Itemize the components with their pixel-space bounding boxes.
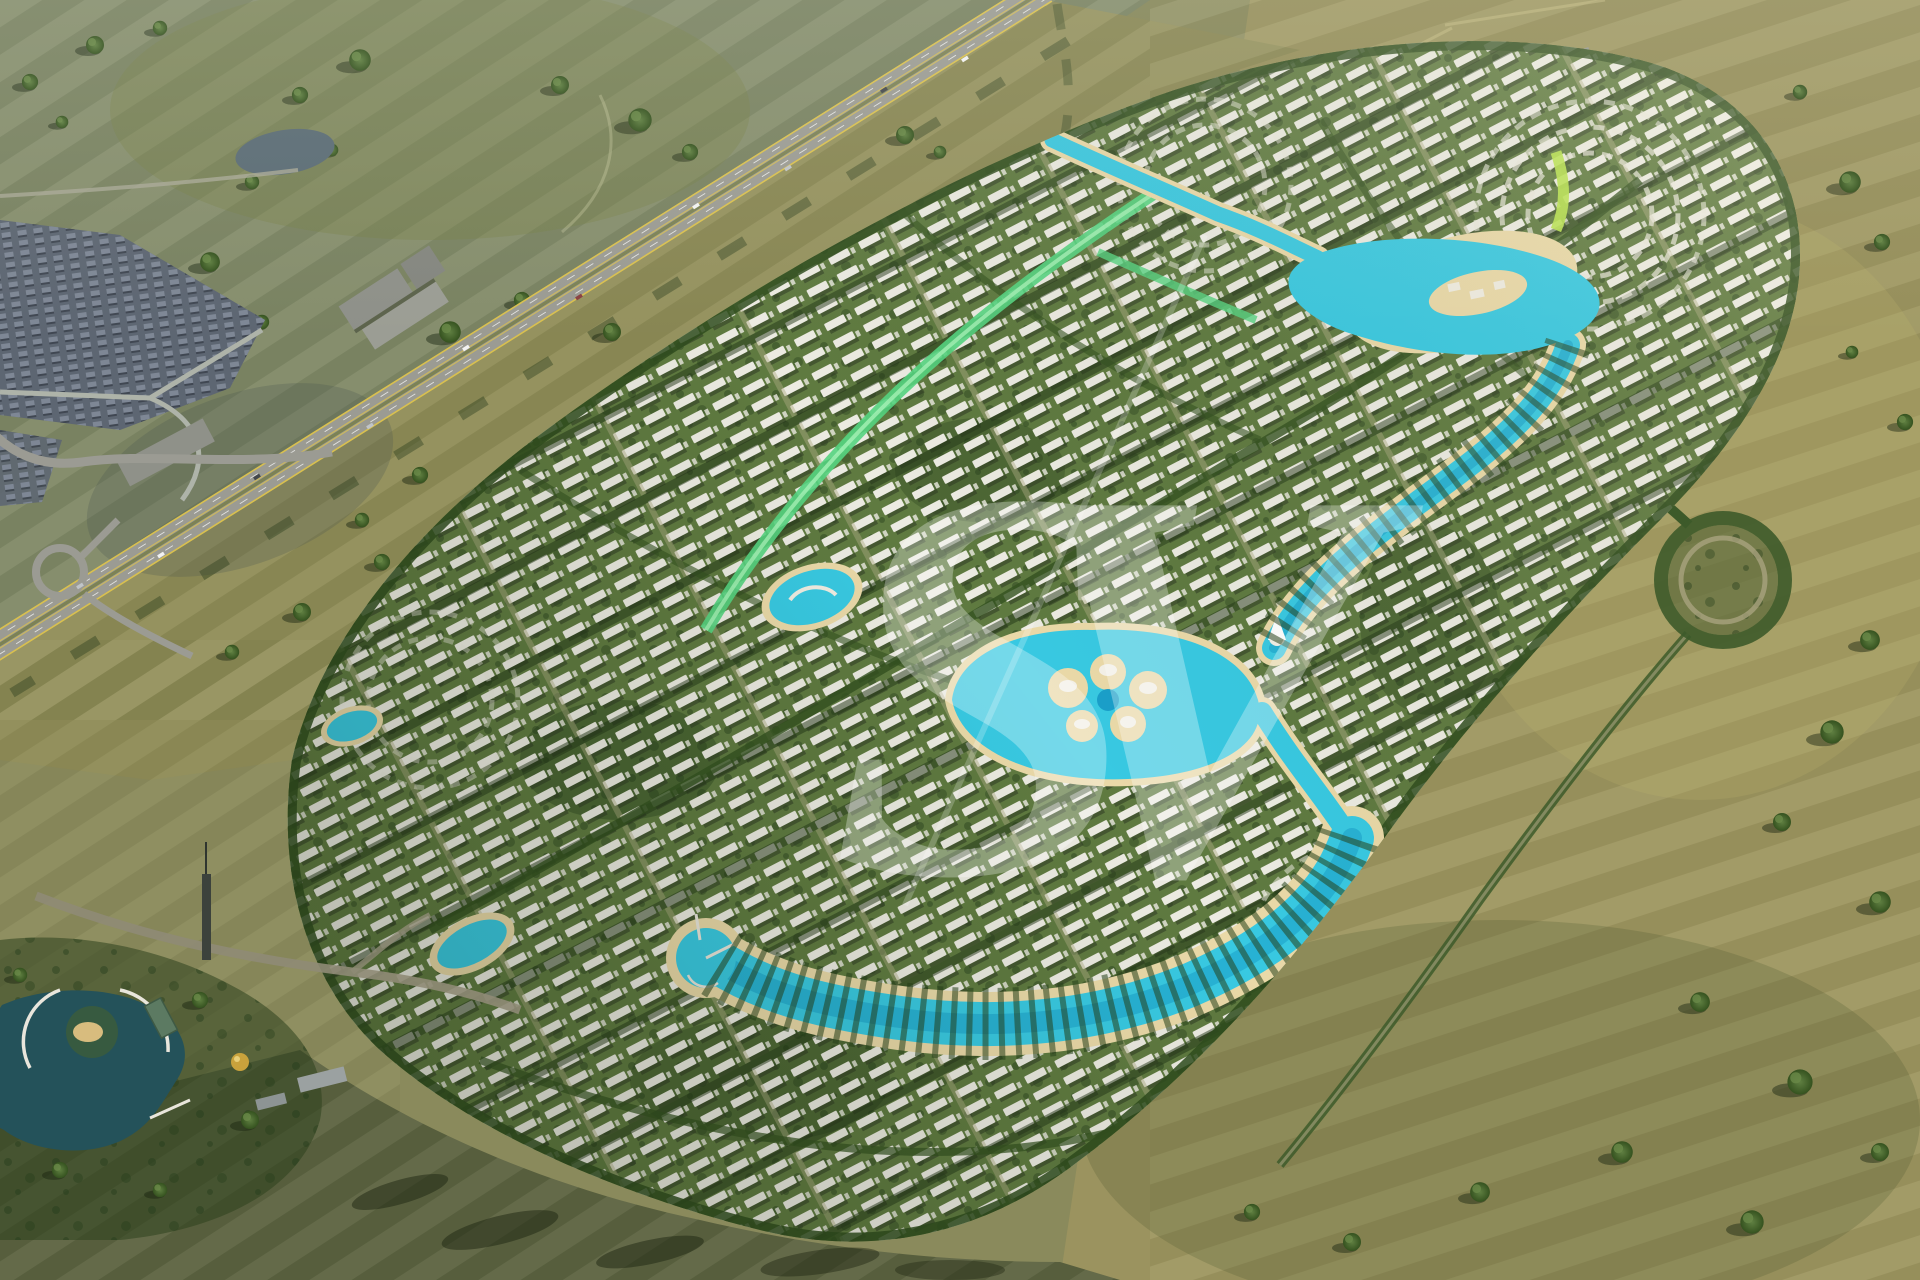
atmospheric-haze (0, 0, 1920, 340)
island-sand (73, 1022, 103, 1042)
aerial-masterplan-render: SV (0, 0, 1920, 1280)
landmark-tower (202, 874, 211, 960)
gold-dome-pavilion (231, 1053, 249, 1071)
